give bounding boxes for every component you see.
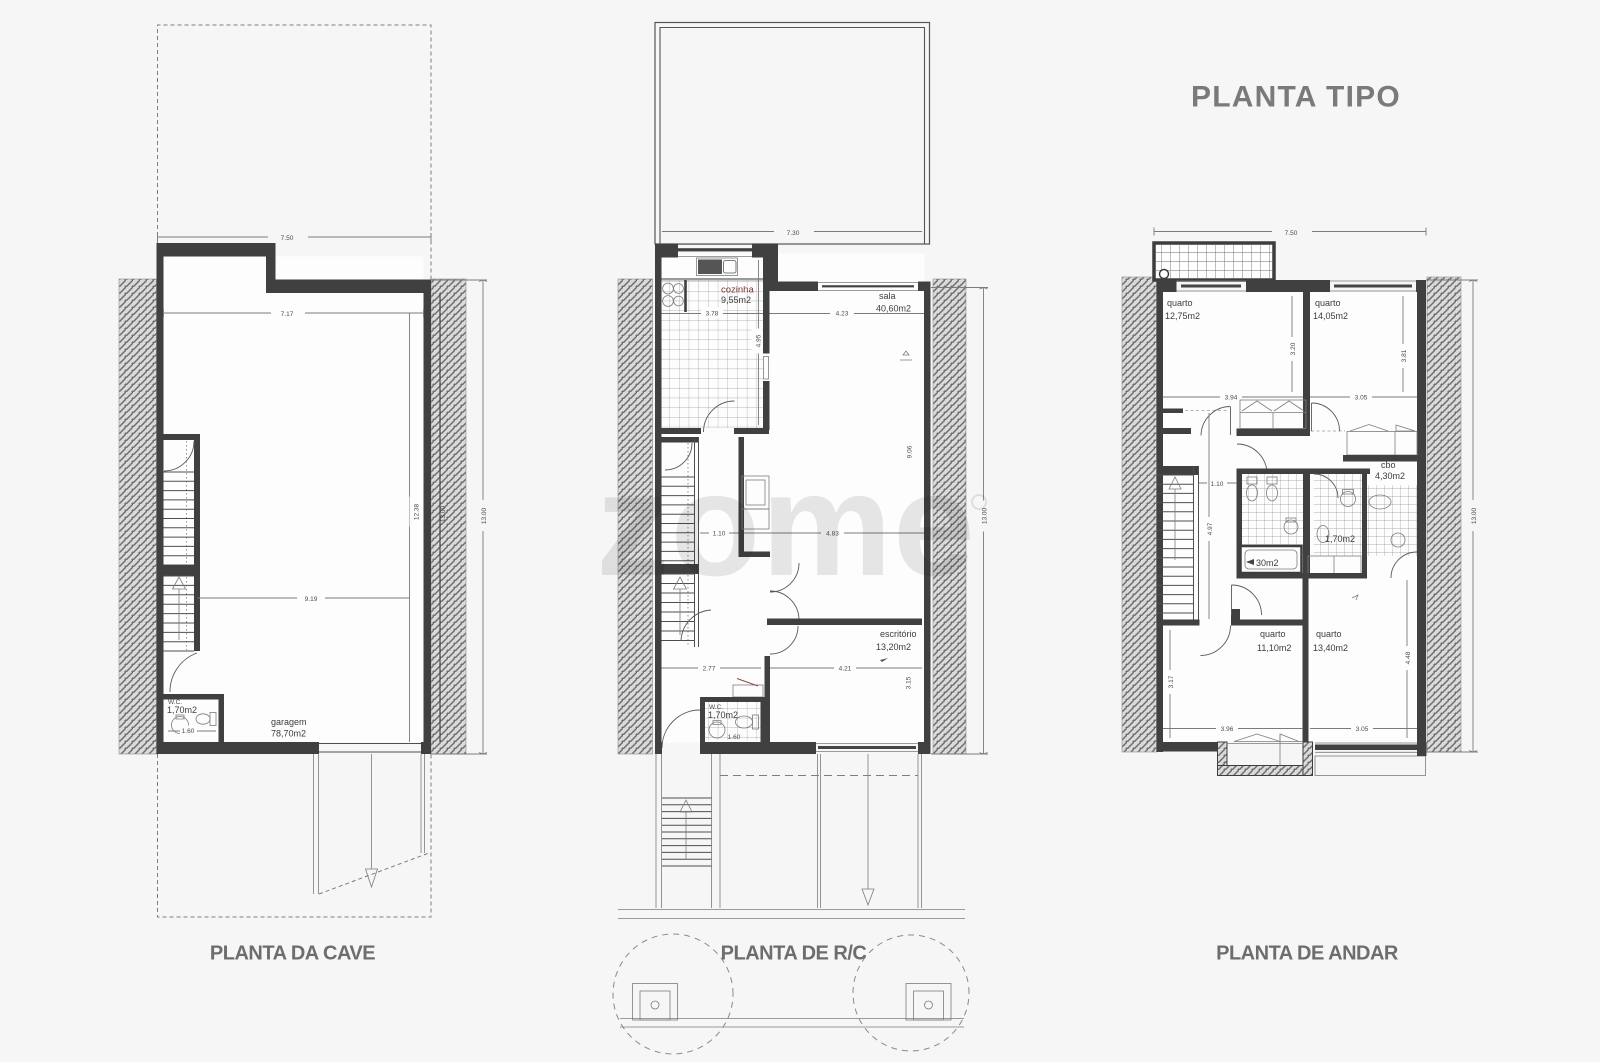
svg-text:3.17: 3.17 [1168,675,1175,688]
svg-text:cozinha: cozinha [721,285,754,296]
svg-text:garagem: garagem [271,717,307,727]
svg-text:PLANTA DE R/C: PLANTA DE R/C [721,943,867,965]
svg-text:7.30: 7.30 [787,230,800,237]
svg-text:quarto: quarto [1167,298,1193,308]
svg-text:1,70m2: 1,70m2 [167,705,197,715]
svg-text:3.81: 3.81 [1401,349,1408,362]
svg-text:1.60: 1.60 [728,734,741,741]
svg-text:11,10m2: 11,10m2 [1257,643,1291,653]
svg-text:1.10: 1.10 [1211,481,1224,488]
svg-text:3.78: 3.78 [706,311,719,318]
svg-text:12,75m2: 12,75m2 [1165,311,1200,321]
svg-text:cbo: cbo [1381,460,1396,470]
svg-text:13.00: 13.00 [440,505,447,522]
svg-text:quarto: quarto [1315,298,1341,308]
svg-text:13.00: 13.00 [481,507,488,524]
svg-text:4,30m2: 4,30m2 [1375,471,1405,481]
svg-text:78,70m2: 78,70m2 [271,729,306,739]
svg-text:7.50: 7.50 [281,235,294,242]
svg-text:4.97: 4.97 [1207,522,1214,535]
svg-text:3.96: 3.96 [1221,726,1234,733]
svg-text:4.23: 4.23 [836,311,849,318]
svg-text:PLANTA DE ANDAR: PLANTA DE ANDAR [1216,943,1399,965]
svg-text:40,60m2: 40,60m2 [876,304,911,314]
svg-text:14,05m2: 14,05m2 [1313,311,1348,321]
svg-text:7.50: 7.50 [1285,230,1298,237]
svg-text:13.00: 13.00 [982,507,989,524]
svg-text:PLANTA DA CAVE: PLANTA DA CAVE [210,943,375,965]
svg-text:1,70m2: 1,70m2 [1325,534,1355,544]
svg-text:13,20m2: 13,20m2 [876,642,911,652]
svg-text:3.15: 3.15 [906,676,913,689]
svg-text:PLANTA TIPO: PLANTA TIPO [1191,81,1401,114]
svg-text:quarto: quarto [1316,629,1342,639]
svg-text:escritório: escritório [880,629,917,639]
svg-text:30m2: 30m2 [1256,558,1279,568]
svg-text:1.60: 1.60 [182,728,195,735]
svg-text:13.00: 13.00 [1471,507,1478,524]
svg-text:1,70m2: 1,70m2 [708,710,738,720]
svg-text:4.95: 4.95 [756,334,763,347]
svg-text:12.38: 12.38 [414,503,421,520]
svg-text:13,40m2: 13,40m2 [1313,643,1348,653]
svg-text:quarto: quarto [1260,629,1286,639]
svg-text:9.19: 9.19 [305,596,318,603]
svg-text:2.77: 2.77 [703,666,716,673]
svg-text:4.48: 4.48 [1405,651,1412,664]
svg-text:4.21: 4.21 [839,666,852,673]
svg-text:sala: sala [879,291,896,301]
svg-text:3.94: 3.94 [1225,395,1238,402]
svg-text:zome: zome [596,443,976,607]
svg-text:9,55m2: 9,55m2 [721,295,751,305]
svg-text:7.17: 7.17 [281,311,294,318]
svg-text:3.05: 3.05 [1356,726,1369,733]
svg-text:3.20: 3.20 [1290,342,1297,355]
svg-text:3.05: 3.05 [1355,395,1368,402]
